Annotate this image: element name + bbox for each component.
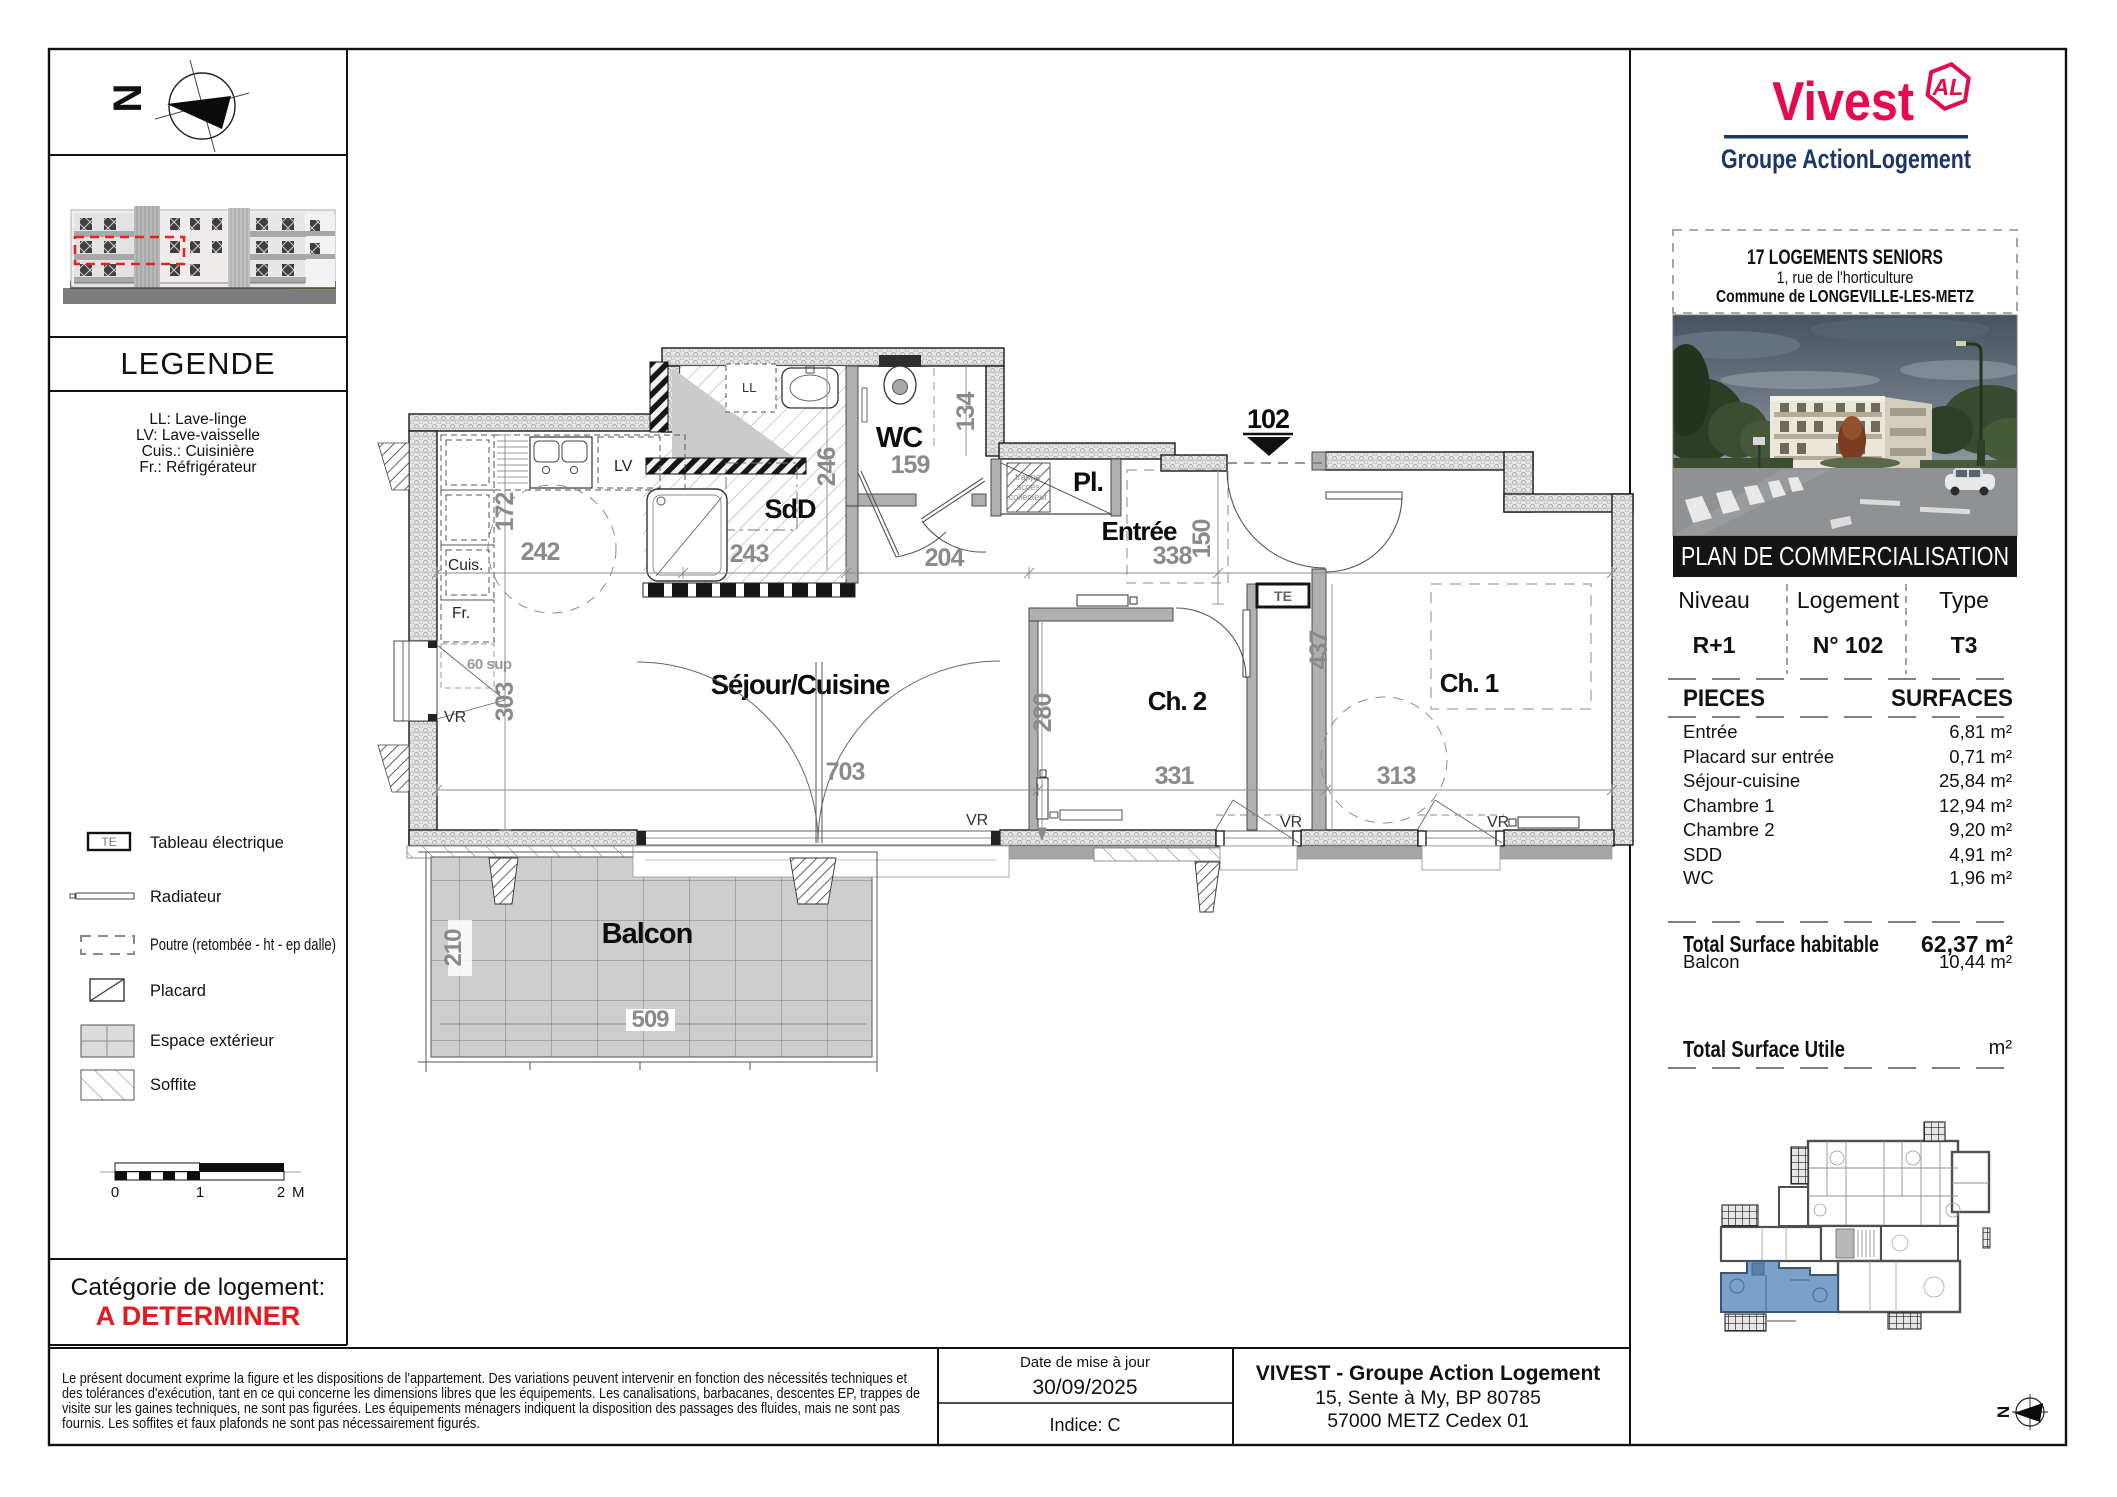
svg-text:N: N (106, 84, 150, 113)
svg-text:313: 313 (1377, 762, 1416, 790)
svg-text:Placard sur entrée: Placard sur entrée (1683, 746, 1834, 767)
svg-text:25,84 m²: 25,84 m² (1939, 770, 2012, 791)
svg-text:1, rue de l'horticulture: 1, rue de l'horticulture (1777, 268, 1914, 287)
svg-text:703: 703 (826, 758, 865, 786)
svg-text:280: 280 (1029, 694, 1057, 733)
svg-text:Balcon: Balcon (602, 918, 693, 950)
svg-text:437: 437 (1305, 631, 1333, 670)
svg-text:trappe: trappe (1015, 472, 1041, 482)
svg-text:Niveau: Niveau (1678, 587, 1750, 613)
svg-text:210: 210 (440, 929, 467, 967)
svg-text:6,81 m²: 6,81 m² (1949, 721, 2012, 742)
svg-text:Indice: C: Indice: C (1049, 1415, 1120, 1435)
svg-text:T3: T3 (1951, 632, 1978, 658)
svg-text:m²: m² (1989, 1037, 2013, 1059)
svg-text:SDD: SDD (1683, 844, 1722, 865)
svg-text:204: 204 (925, 544, 965, 572)
svg-text:Tableau électrique: Tableau électrique (150, 834, 284, 852)
svg-text:M: M (292, 1184, 305, 1201)
svg-text:fournis. Les soffites et faux: fournis. Les soffites et faux plafonds n… (62, 1415, 480, 1432)
svg-text:Pl.: Pl. (1073, 467, 1103, 497)
svg-text:1: 1 (196, 1184, 204, 1201)
svg-text:10,44 m²: 10,44 m² (1939, 951, 2012, 972)
svg-text:Cuis.: Cuisinière: Cuis.: Cuisinière (142, 443, 255, 460)
svg-text:Vivest: Vivest (1772, 70, 1914, 132)
svg-text:WC: WC (1683, 867, 1714, 888)
svg-text:30/09/2025: 30/09/2025 (1032, 1376, 1137, 1399)
svg-text:0: 0 (111, 1184, 119, 1201)
svg-text:Entrée: Entrée (1683, 721, 1738, 742)
svg-text:Logement: Logement (1797, 587, 1900, 613)
svg-text:VR: VR (1280, 814, 1302, 831)
svg-text:VR: VR (1487, 814, 1509, 831)
svg-text:Soffite: Soffite (150, 1076, 196, 1094)
svg-text:Chambre 1: Chambre 1 (1683, 795, 1775, 816)
svg-text:0,71 m²: 0,71 m² (1949, 746, 2012, 767)
svg-text:2: 2 (277, 1184, 285, 1201)
svg-text:Placard: Placard (150, 982, 206, 1000)
svg-text:collecteur: collecteur (1009, 492, 1048, 502)
svg-text:246: 246 (813, 448, 841, 487)
svg-text:Catégorie de logement:: Catégorie de logement: (71, 1274, 326, 1301)
svg-text:LV: Lave-vaisselle: LV: Lave-vaisselle (136, 427, 260, 444)
svg-text:Groupe ActionLogement: Groupe ActionLogement (1721, 144, 1971, 174)
svg-text:PIECES: PIECES (1683, 685, 1765, 712)
svg-text:4,91 m²: 4,91 m² (1949, 844, 2012, 865)
svg-text:SdD: SdD (765, 494, 817, 524)
svg-text:134: 134 (952, 392, 980, 432)
svg-text:Total Surface Utile: Total Surface Utile (1683, 1036, 1845, 1062)
svg-text:TE: TE (1274, 588, 1292, 604)
svg-text:12,94 m²: 12,94 m² (1939, 795, 2012, 816)
svg-text:Commune de LONGEVILLE-LES-METZ: Commune de LONGEVILLE-LES-METZ (1716, 286, 1974, 306)
svg-text:AL: AL (1932, 74, 1964, 100)
svg-text:242: 242 (521, 538, 560, 566)
svg-text:LL: Lave-linge: LL: Lave-linge (149, 411, 246, 428)
svg-text:Cuis.: Cuis. (448, 557, 483, 574)
svg-text:Ch. 1: Ch. 1 (1440, 668, 1499, 698)
svg-text:PLAN DE COMMERCIALISATION: PLAN DE COMMERCIALISATION (1681, 541, 2009, 571)
svg-text:VR: VR (966, 812, 988, 829)
svg-text:Balcon: Balcon (1683, 951, 1740, 972)
svg-text:243: 243 (730, 540, 769, 568)
svg-text:150: 150 (1188, 520, 1216, 559)
svg-text:1,96 m²: 1,96 m² (1949, 867, 2012, 888)
svg-text:Ch. 2: Ch. 2 (1148, 686, 1207, 716)
svg-text:331: 331 (1155, 762, 1195, 790)
svg-text:Fr.: Fr. (452, 605, 470, 622)
svg-text:N: N (1994, 1406, 2013, 1418)
svg-text:509: 509 (631, 1006, 669, 1033)
svg-text:9,20 m²: 9,20 m² (1949, 819, 2012, 840)
svg-text:TE: TE (101, 835, 116, 849)
svg-text:Fr.: Réfrigérateur: Fr.: Réfrigérateur (139, 459, 256, 476)
svg-text:303: 303 (491, 683, 519, 722)
svg-text:VR: VR (444, 709, 466, 726)
svg-text:LEGENDE: LEGENDE (120, 346, 275, 381)
svg-text:SURFACES: SURFACES (1891, 685, 2013, 712)
svg-text:17 LOGEMENTS SENIORS: 17 LOGEMENTS SENIORS (1747, 246, 1943, 269)
svg-text:N° 102: N° 102 (1813, 632, 1884, 658)
svg-text:Espace extérieur: Espace extérieur (150, 1032, 274, 1050)
svg-text:172: 172 (491, 493, 519, 532)
svg-text:A DETERMINER: A DETERMINER (96, 1301, 301, 1331)
svg-text:57000 METZ Cedex 01: 57000 METZ Cedex 01 (1327, 1410, 1529, 1432)
svg-text:Date de mise à jour: Date de mise à jour (1020, 1354, 1150, 1371)
svg-text:Séjour-cuisine: Séjour-cuisine (1683, 770, 1800, 791)
svg-text:accès: accès (1016, 482, 1040, 492)
svg-text:338: 338 (1153, 542, 1193, 570)
svg-text:VIVEST - Groupe Action Logemen: VIVEST - Groupe Action Logement (1256, 1362, 1601, 1385)
svg-text:Type: Type (1939, 587, 1989, 613)
svg-text:LV: LV (614, 458, 633, 475)
svg-text:Chambre 2: Chambre 2 (1683, 819, 1775, 840)
svg-text:Séjour/Cuisine: Séjour/Cuisine (711, 669, 890, 700)
svg-text:WC: WC (876, 422, 923, 454)
svg-text:15, Sente à My, BP 80785: 15, Sente à My, BP 80785 (1315, 1387, 1541, 1409)
svg-text:R+1: R+1 (1693, 632, 1736, 658)
svg-text:Radiateur: Radiateur (150, 888, 222, 906)
svg-text:LL: LL (742, 380, 756, 395)
svg-text:Poutre (retombée - ht - ep dal: Poutre (retombée - ht - ep dalle) (150, 936, 336, 954)
svg-text:159: 159 (891, 451, 930, 479)
svg-text:102: 102 (1247, 404, 1289, 434)
